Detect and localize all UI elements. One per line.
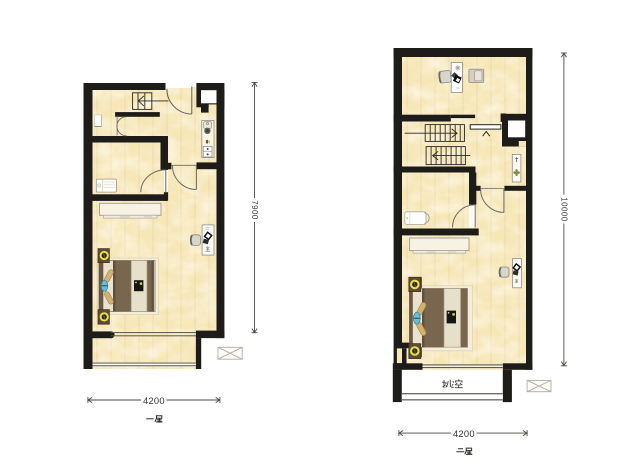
svg-text:4200: 4200 [143, 395, 165, 406]
svg-text:4200: 4200 [453, 428, 475, 439]
svg-text:7900: 7900 [250, 200, 259, 220]
svg-text:10000: 10000 [559, 197, 568, 222]
